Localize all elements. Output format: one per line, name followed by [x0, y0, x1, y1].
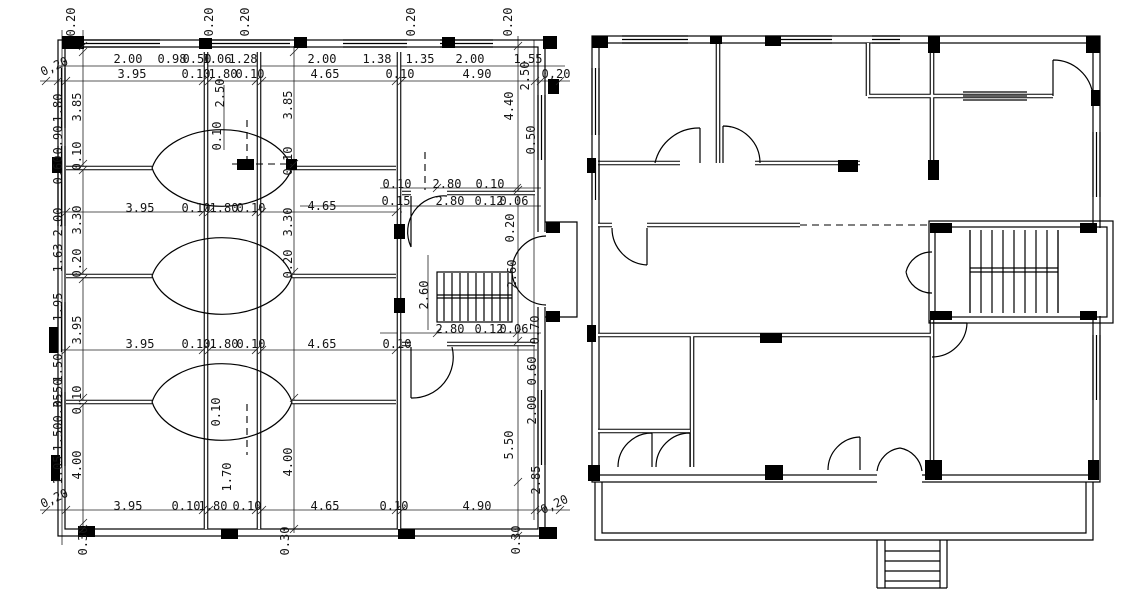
dim-label: 2.60	[505, 260, 519, 289]
dim-label: 3.85	[70, 93, 84, 122]
dim-label: 2.00	[308, 52, 337, 66]
dim-label: 4.65	[308, 337, 337, 351]
dim-label: 1.63	[51, 244, 65, 273]
dim-label: 2.80	[433, 177, 462, 191]
dim-label: 0.10	[70, 386, 84, 415]
dim-label: 0.10	[182, 337, 211, 351]
door-arc	[655, 128, 700, 163]
dim-label: 1.50	[51, 423, 65, 452]
dim-label: 1.28	[229, 52, 258, 66]
dim-label: 1.05	[51, 456, 65, 485]
dim-label: 3.95	[70, 316, 84, 345]
staircase	[437, 272, 512, 322]
dim-label: 1.35	[406, 52, 435, 66]
dim-label: 4.40	[502, 92, 516, 121]
dim-label: 4.00	[70, 451, 84, 480]
dim-label: 0,20	[542, 67, 571, 81]
interior-walls	[598, 43, 1053, 467]
dim-label: 1.50	[51, 354, 65, 383]
dimension-lines	[40, 30, 570, 545]
dim-label: 2.50	[518, 62, 532, 91]
dim-label: 0.50	[524, 126, 538, 155]
door-arc	[828, 437, 860, 470]
dim-label: 4.90	[463, 499, 492, 513]
dim-label: 0.60	[525, 357, 539, 386]
dim-label: 4.65	[311, 499, 340, 513]
dim-label: 0.30	[509, 526, 523, 555]
structural-columns	[587, 36, 1100, 481]
dim-label: 1.80	[210, 201, 239, 215]
dim-label: 3.30	[281, 208, 295, 237]
exterior-walls	[592, 36, 1100, 482]
dim-label: 0.20	[202, 8, 216, 37]
porch	[595, 482, 1093, 588]
dim-label: 0.20	[238, 8, 252, 37]
dim-label: 0,20	[538, 492, 570, 517]
dim-label: 0.20	[64, 8, 78, 37]
dim-label: 3.85	[281, 91, 295, 120]
door-arc	[656, 433, 690, 467]
entrance-opening	[877, 464, 922, 484]
dim-label: 2.60	[417, 281, 431, 310]
entry-opening	[536, 232, 547, 307]
dim-label: 0.10	[476, 177, 505, 191]
interior-walls-core	[598, 43, 1053, 467]
dimension-ticks	[42, 42, 564, 540]
dim-label: 0.20	[503, 214, 517, 243]
door-arc	[618, 433, 652, 467]
dim-label: 0.35	[51, 394, 65, 423]
double-swing-door	[906, 252, 932, 293]
windows	[592, 36, 1100, 400]
dim-label: 0.10	[380, 499, 409, 513]
dim-label: 0.06	[500, 322, 529, 336]
dim-label: 0.10	[281, 147, 295, 176]
dim-label: 0.10	[172, 499, 201, 513]
structural-columns	[49, 36, 560, 539]
dim-label: 1.80	[210, 337, 239, 351]
dim-label: 0.60	[51, 156, 65, 185]
dim-label: 0.10	[70, 142, 84, 171]
dim-label: 4.65	[308, 199, 337, 213]
double-acting-door	[152, 238, 292, 315]
dim-label: 0.30	[76, 527, 90, 556]
left-floor-plan: 0,202.000.980.501.061.282.001.381.352.00…	[38, 8, 577, 556]
doors	[612, 60, 1093, 471]
dim-label: 3.95	[118, 67, 147, 81]
dim-label: 2.85	[529, 466, 543, 495]
dim-label: 0.70	[528, 316, 542, 345]
dim-label: 2.00	[525, 396, 539, 425]
dim-label: 0.20	[281, 250, 295, 279]
dim-label: 2.50	[213, 79, 227, 108]
dim-label: 0.15	[382, 194, 411, 208]
dim-label: 5.50	[502, 431, 516, 460]
exterior-walls	[58, 40, 545, 536]
right-floor-plan	[587, 36, 1113, 588]
dim-label: 0.06	[500, 194, 529, 208]
dim-label: 0.10	[386, 67, 415, 81]
interior-walls-core	[66, 52, 535, 529]
dim-label: 2.80	[436, 322, 465, 336]
dim-label: 0.10	[210, 122, 224, 151]
interior-walls	[66, 52, 535, 529]
dim-label: 3.95	[126, 201, 155, 215]
dim-label: 2.80	[436, 194, 465, 208]
dim-label: 1.06	[203, 52, 232, 66]
dim-label: 3.95	[114, 499, 143, 513]
dim-label: 3.30	[70, 206, 84, 235]
dim-label: 1.38	[363, 52, 392, 66]
floor-plan-sheet: 0,202.000.980.501.061.282.001.381.352.00…	[0, 0, 1137, 611]
door-arc	[932, 323, 967, 357]
dim-label: 4.00	[281, 448, 295, 477]
door-arc	[723, 126, 760, 163]
dim-label: 0.20	[501, 8, 515, 37]
door-arc	[1053, 60, 1093, 96]
dim-label: 0.10	[236, 67, 265, 81]
dim-label: 0.90	[51, 126, 65, 155]
stairwell-opening	[1092, 228, 1102, 316]
dim-label: 0.10	[182, 201, 211, 215]
dim-label: 1.70	[220, 463, 234, 492]
dim-label: 3.95	[126, 337, 155, 351]
dim-label: 2.00	[456, 52, 485, 66]
dim-label: 1.95	[51, 293, 65, 322]
dim-label: 4.90	[463, 67, 492, 81]
dimension-labels: 0,202.000.980.501.061.282.001.381.352.00…	[38, 8, 570, 556]
floor-plan-drawing: 0,202.000.980.501.061.282.001.381.352.00…	[0, 0, 1137, 611]
dim-label: 2.00	[51, 208, 65, 237]
dim-label: 0.10	[182, 67, 211, 81]
dim-label: 1.80	[51, 94, 65, 123]
entrance-steps	[877, 540, 947, 588]
dim-label: 2.00	[114, 52, 143, 66]
dim-label: 4.65	[311, 67, 340, 81]
door-arc	[411, 347, 453, 398]
stairwell	[906, 221, 1113, 323]
dim-label: 0.10	[233, 499, 262, 513]
dim-label: 0.30	[278, 527, 292, 556]
dim-label: 0.20	[404, 8, 418, 37]
dim-label: 0.10	[209, 398, 223, 427]
door-arc	[612, 228, 647, 265]
dim-label: 0.10	[383, 177, 412, 191]
dim-label: 0.10	[237, 337, 266, 351]
